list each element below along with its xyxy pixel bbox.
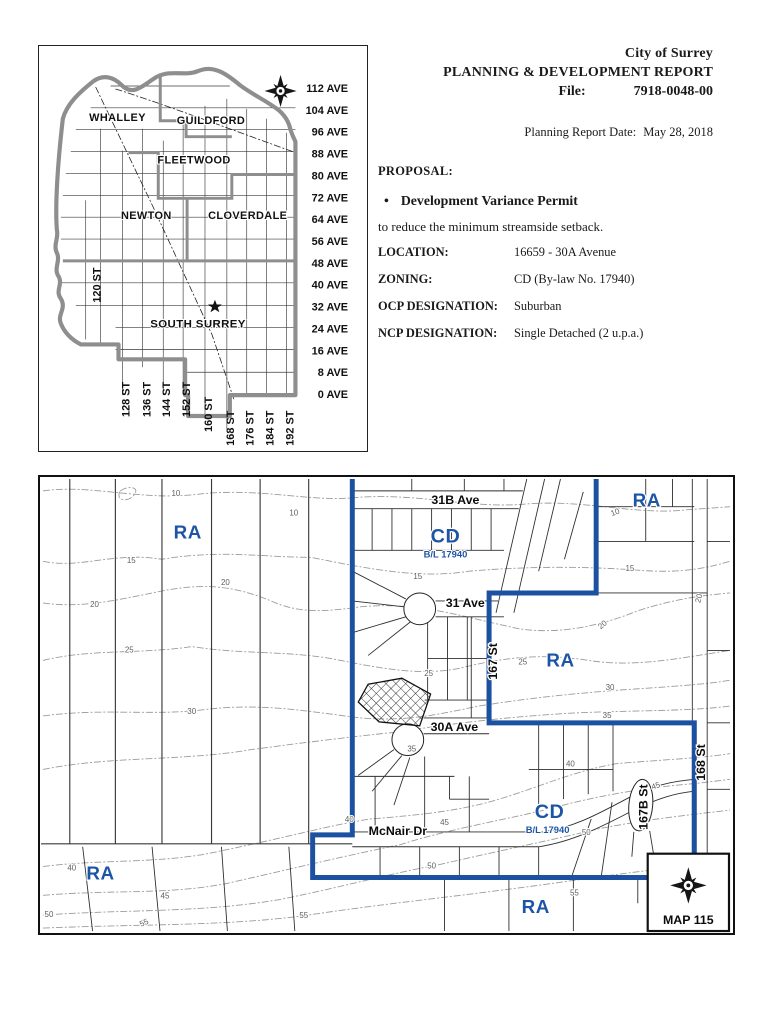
proposal-section: PROPOSAL: • Development Variance Permit … bbox=[378, 164, 770, 341]
zone-label: RA bbox=[633, 490, 661, 511]
zone-label: CD bbox=[431, 525, 461, 547]
avenue-label: 80 AVE bbox=[312, 170, 348, 182]
contour-elevation-label: 25 bbox=[424, 669, 433, 678]
contour-elevation-label: 55 bbox=[570, 888, 579, 897]
map-sheet-badge: MAP 115 bbox=[648, 854, 729, 931]
street-label: 144 ST bbox=[161, 381, 173, 417]
contour-elevation-label: 45 bbox=[440, 818, 449, 827]
avenue-label: 24 AVE bbox=[312, 323, 348, 335]
zone-label: CD bbox=[535, 801, 565, 823]
avenue-label: 104 AVE bbox=[306, 105, 349, 117]
bylaw-label: B/L 17940 bbox=[526, 824, 570, 835]
street-label: 184 ST bbox=[265, 410, 277, 446]
contour-elevation-label: 40 bbox=[67, 864, 76, 873]
report-header: City of Surrey PLANNING & DEVELOPMENT RE… bbox=[372, 44, 713, 140]
highway-lines bbox=[96, 87, 296, 399]
street-label: 128 ST bbox=[120, 381, 132, 417]
file-number: 7918-0048-00 bbox=[634, 82, 713, 101]
proposal-fields: LOCATION: 16659 - 30A Avenue ZONING: CD … bbox=[378, 245, 770, 341]
zone-label: RA bbox=[546, 649, 574, 670]
field-label: LOCATION: bbox=[378, 245, 514, 260]
contour-elevation-label: 20 bbox=[221, 578, 230, 587]
contour-elevation-label: 10 bbox=[171, 489, 180, 498]
surrey-locator-map: WHALLEYGUILDFORDFLEETWOODNEWTONCLOVERDAL… bbox=[38, 45, 368, 452]
street-label: 160 ST bbox=[203, 396, 215, 432]
street-label: 136 ST bbox=[141, 381, 153, 417]
avenue-label: 112 AVE bbox=[306, 83, 348, 95]
zone-label: RA bbox=[174, 521, 202, 542]
contour-elevation-label: 25 bbox=[518, 657, 527, 666]
field-value: 16659 - 30A Avenue bbox=[514, 245, 770, 260]
field-label: NCP DESIGNATION: bbox=[378, 326, 514, 341]
location-star-icon bbox=[208, 300, 222, 313]
report-page: City of Surrey PLANNING & DEVELOPMENT RE… bbox=[0, 0, 770, 1024]
district-label: FLEETWOOD bbox=[157, 155, 230, 167]
cul-de-sac-31ave bbox=[404, 593, 436, 625]
field-value: CD (By-law No. 17940) bbox=[514, 272, 770, 287]
district-label: WHALLEY bbox=[89, 112, 146, 124]
contour-elevation-label: 50 bbox=[45, 910, 54, 919]
field-label: ZONING: bbox=[378, 272, 514, 287]
city-street-grid bbox=[61, 86, 296, 429]
street-label: 152 ST bbox=[181, 381, 193, 417]
file-label: File: bbox=[558, 82, 585, 101]
avenue-label: 56 AVE bbox=[312, 236, 348, 248]
contour-elevation-label: 45 bbox=[161, 891, 170, 900]
proposal-description: to reduce the minimum streamside setback… bbox=[378, 219, 770, 235]
avenue-label: 72 AVE bbox=[312, 192, 348, 204]
contour-elevation-label: 55 bbox=[138, 917, 150, 929]
avenue-label: 8 AVE bbox=[318, 367, 348, 379]
district-label: SOUTH SURREY bbox=[150, 319, 246, 331]
avenue-label: 40 AVE bbox=[312, 280, 348, 292]
field-value: Suburban bbox=[514, 299, 770, 314]
proposal-heading: PROPOSAL: bbox=[378, 164, 770, 179]
contour-elevation-label: 15 bbox=[625, 564, 634, 573]
district-label: NEWTON bbox=[121, 210, 172, 222]
avenue-label: 32 AVE bbox=[312, 302, 348, 314]
city-name: City of Surrey bbox=[372, 44, 713, 63]
contour-elevation-label: 50 bbox=[582, 828, 591, 837]
street-label: 31 Ave bbox=[446, 596, 485, 610]
contour-elevation-label: 10 bbox=[289, 509, 298, 518]
proposal-bullet-text: Development Variance Permit bbox=[401, 193, 578, 209]
street-label: 168 St bbox=[694, 744, 708, 780]
contour-elevation-label: 40 bbox=[566, 759, 575, 768]
street-label: McNair Dr bbox=[369, 824, 428, 838]
district-label: CLOVERDALE bbox=[208, 210, 287, 222]
contour-elevation-label: 55 bbox=[299, 911, 308, 920]
contour-elevation-label: 15 bbox=[127, 556, 136, 565]
report-title: PLANNING & DEVELOPMENT REPORT bbox=[372, 63, 713, 82]
bullet-icon: • bbox=[384, 193, 389, 209]
street-label: 168 ST bbox=[225, 410, 237, 446]
zoning-detail-map: MAP 115 10101015151520202020252525303035… bbox=[38, 475, 735, 935]
street-label: 120 ST bbox=[92, 267, 104, 303]
avenue-label: 96 AVE bbox=[312, 127, 348, 139]
street-label: 167 St bbox=[486, 643, 500, 679]
street-label: 192 ST bbox=[284, 410, 296, 446]
zone-label: RA bbox=[86, 862, 114, 883]
report-date-line: Planning Report Date: May 28, 2018 bbox=[372, 125, 713, 140]
avenue-label: 64 AVE bbox=[312, 214, 348, 226]
district-label: GUILDFORD bbox=[177, 115, 246, 127]
contour-elevation-label: 30 bbox=[606, 683, 615, 692]
field-value: Single Detached (2 u.p.a.) bbox=[514, 326, 770, 341]
map-sheet-label: MAP 115 bbox=[663, 913, 714, 927]
contour-elevation-label: 20 bbox=[90, 600, 99, 609]
contour-elevation-label: 45 bbox=[650, 780, 662, 792]
zone-label: RA bbox=[522, 896, 550, 917]
date-label: Planning Report Date: bbox=[524, 125, 636, 140]
street-label: 176 ST bbox=[245, 410, 257, 446]
avenue-label: 0 AVE bbox=[318, 389, 348, 401]
avenue-label: 88 AVE bbox=[312, 149, 348, 161]
contour-elevation-label: 35 bbox=[603, 711, 612, 720]
street-label: 167B St bbox=[637, 784, 651, 829]
street-label: 31B Ave bbox=[431, 493, 479, 507]
contour-elevation-label: 15 bbox=[413, 572, 422, 581]
proposal-bullet-item: • Development Variance Permit bbox=[378, 193, 770, 209]
contour-elevation-label: 20 bbox=[693, 592, 704, 603]
contour-elevation-label: 20 bbox=[596, 618, 609, 631]
avenue-label: 16 AVE bbox=[312, 345, 348, 357]
bylaw-label: B/L 17940 bbox=[424, 548, 468, 559]
street-label: 30A Ave bbox=[431, 720, 479, 734]
contour-elevation-label: 50 bbox=[427, 862, 436, 871]
contour-elevation-label: 40 bbox=[345, 815, 354, 824]
contour-elevation-label: 30 bbox=[187, 707, 196, 716]
avenue-label: 48 AVE bbox=[312, 258, 348, 270]
contour-elevation-label: 35 bbox=[407, 745, 416, 754]
district-boundaries bbox=[63, 75, 296, 261]
contour-elevation-label: 25 bbox=[125, 645, 134, 654]
file-line: File: 7918-0048-00 bbox=[372, 82, 713, 101]
date-value: May 28, 2018 bbox=[643, 125, 713, 140]
field-label: OCP DESIGNATION: bbox=[378, 299, 514, 314]
